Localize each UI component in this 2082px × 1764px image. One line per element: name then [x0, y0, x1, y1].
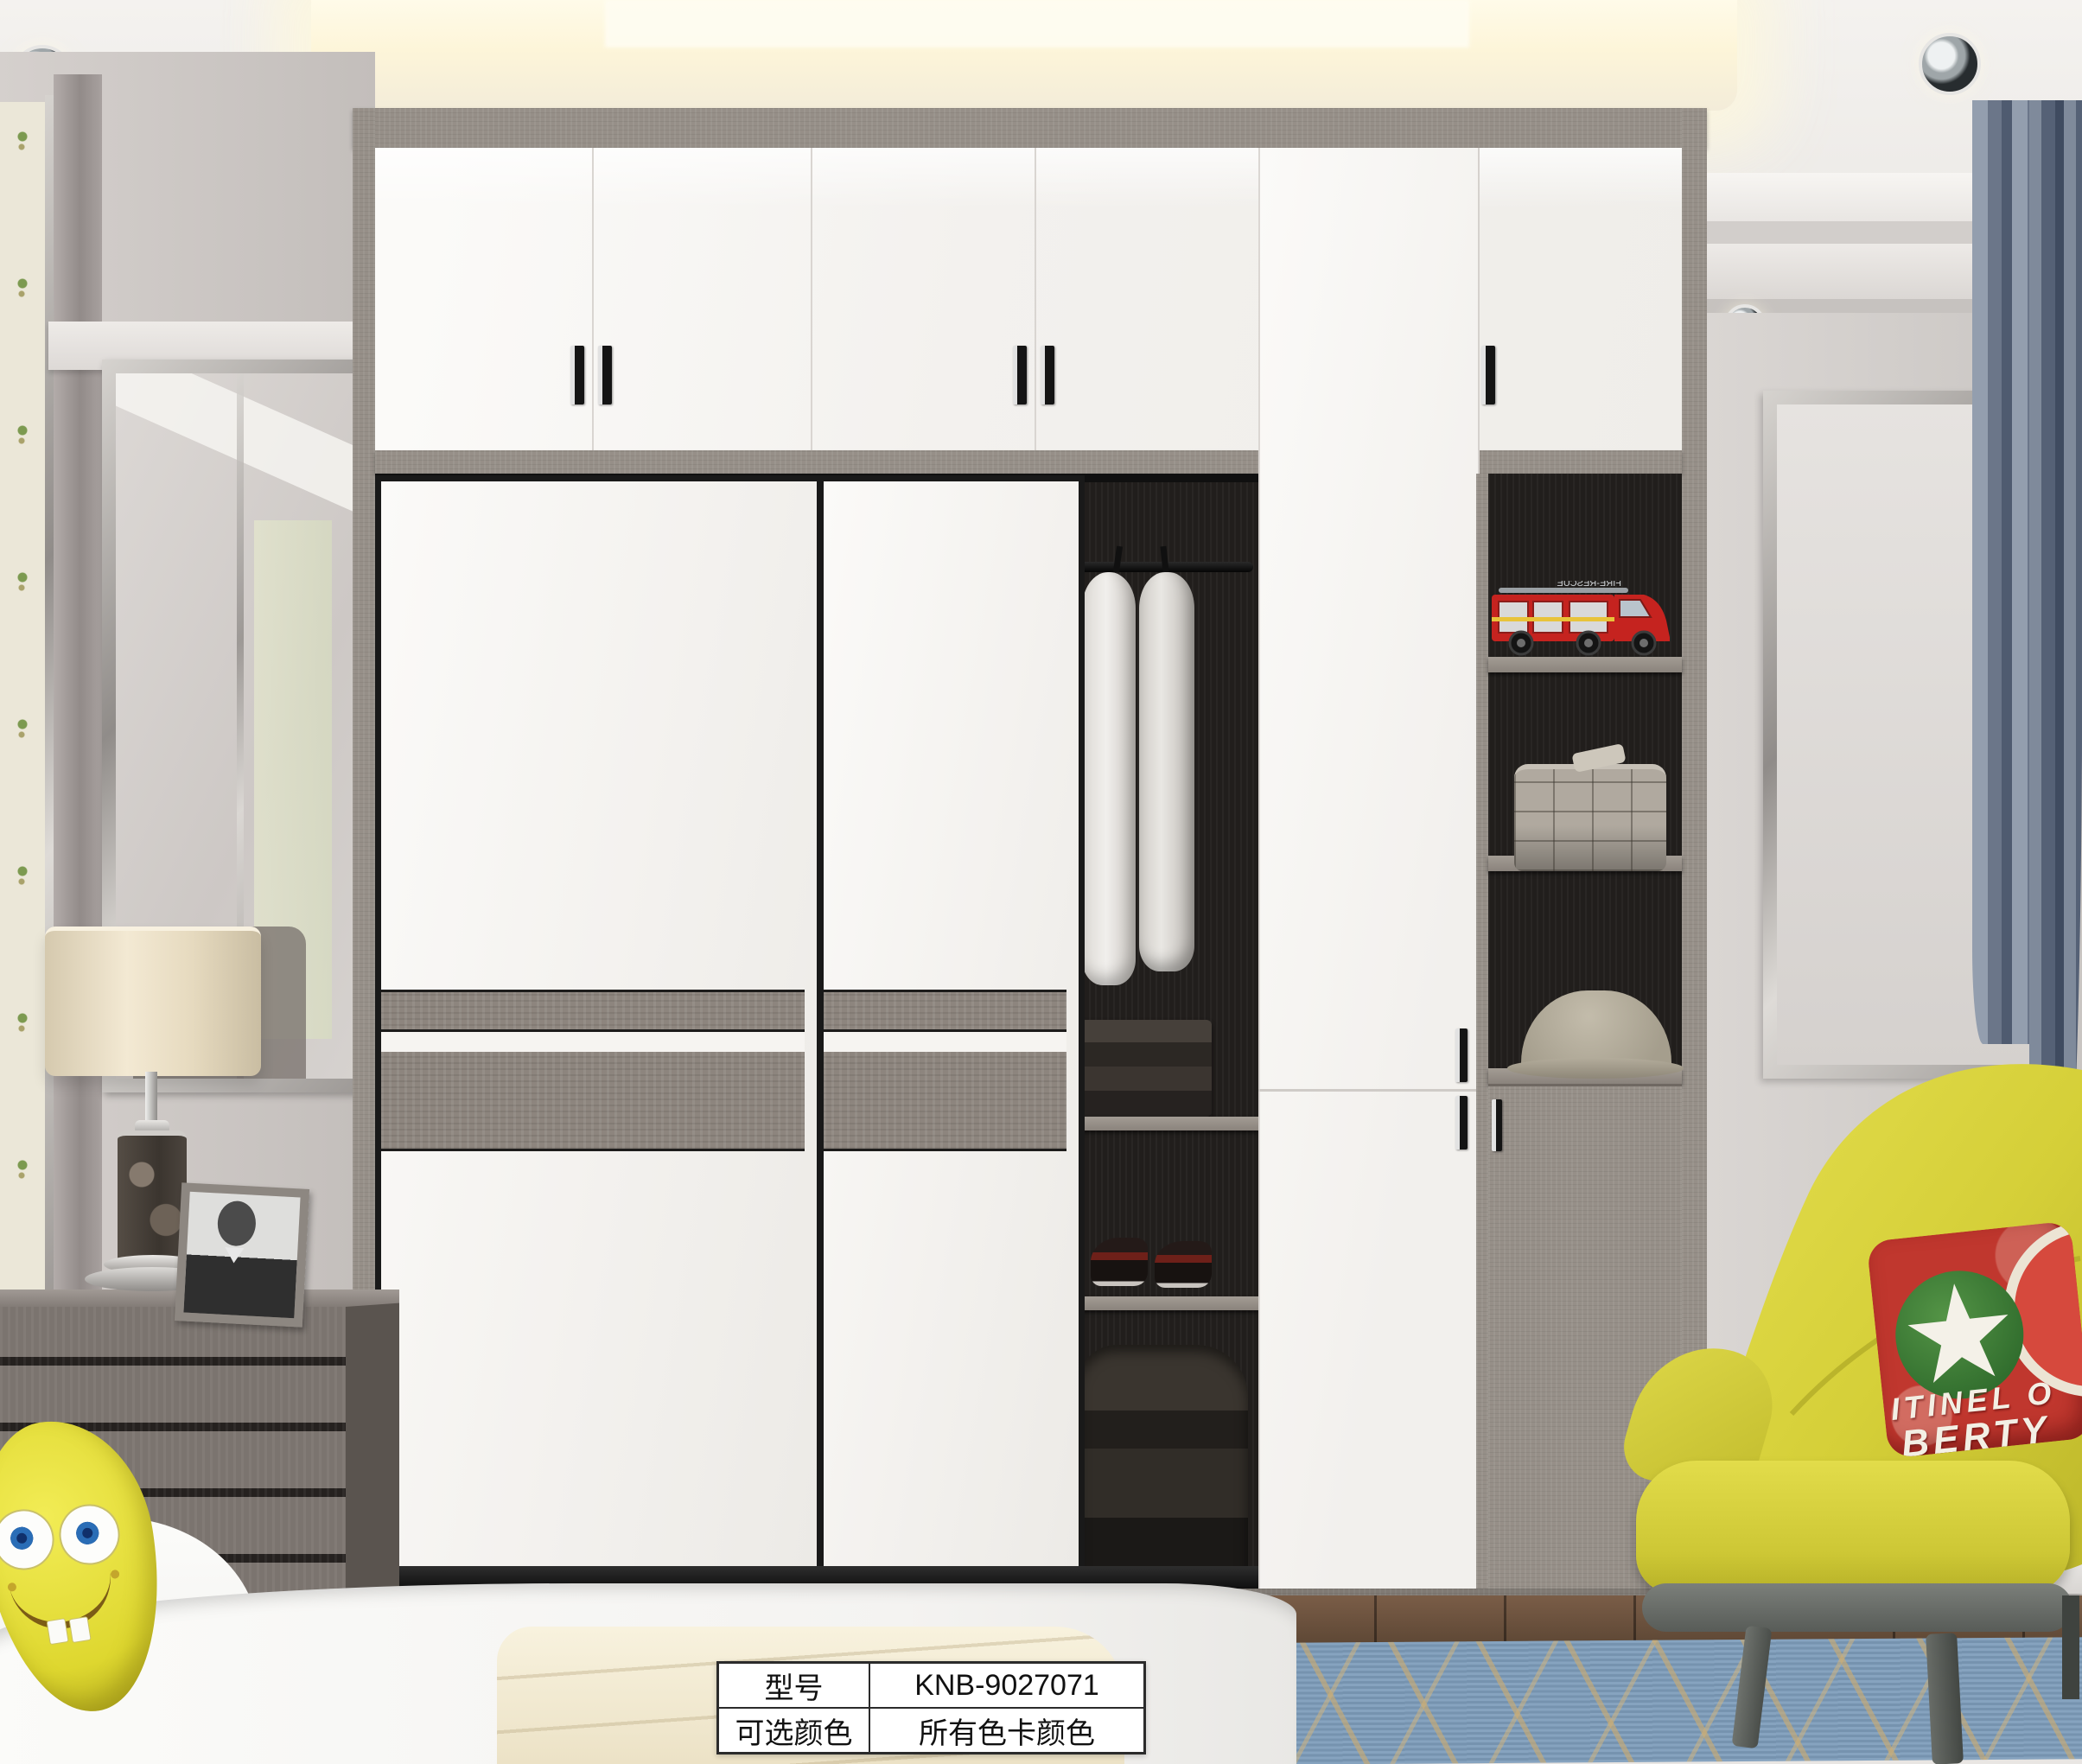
folded-blankets: [1079, 1345, 1248, 1587]
tall-white-cabinet: [1258, 148, 1480, 1589]
product-spec-table: 型号 KNB-9027071 可选颜色 所有色卡颜色: [716, 1661, 1146, 1754]
wardrobe-frame-top: [353, 108, 1707, 148]
folded-clothes-stack: [1080, 1020, 1212, 1117]
chair-frame-rim: [1642, 1583, 2072, 1632]
chair-leg: [2062, 1595, 2079, 1699]
hanging-jacket: [1139, 572, 1194, 971]
spec-value-colors: 所有色卡颜色: [869, 1708, 1144, 1753]
cabinet-handle: [1041, 346, 1054, 404]
chair-seat-cushion: [1636, 1461, 2070, 1594]
cabinet-handle: [1492, 1099, 1502, 1151]
sneaker: [1091, 1238, 1148, 1286]
cabinet-handle: [1013, 346, 1027, 404]
tall-cabinet-door-split: [1258, 1089, 1476, 1092]
door-concrete-band: [824, 990, 1066, 1032]
sneaker: [1155, 1241, 1212, 1288]
table-lamp-shade: [45, 927, 261, 1076]
spongebob-freckle: [110, 1570, 119, 1579]
spec-value-model: KNB-9027071: [869, 1663, 1144, 1708]
star-icon: [1901, 1276, 2018, 1393]
spec-label-colors: 可选颜色: [718, 1708, 869, 1753]
ceiling-spotlight-icon: [1919, 33, 1981, 95]
upper-cabinets-gloss: [375, 148, 1682, 208]
upper-door-seam: [1035, 148, 1036, 450]
bay-shelf: [1073, 1117, 1258, 1130]
spongebob-tooth: [47, 1618, 69, 1645]
bedroom-wardrobe-scene: FIRE-RESCUE: [0, 0, 2082, 1764]
bay-shelf: [1073, 1296, 1258, 1310]
portrait-shirt: [225, 1247, 245, 1264]
toy-fire-truck: FIRE-RESCUE: [1492, 581, 1670, 657]
portrait-head: [217, 1200, 258, 1247]
cabinet-handle: [1455, 1028, 1468, 1082]
star-pillow: ITINEL O BERTY: [1866, 1220, 2082, 1458]
nightstand-side: [346, 1303, 399, 1620]
upper-door-seam: [592, 148, 594, 450]
hanging-jacket: [1082, 572, 1136, 985]
upper-door-seam: [811, 148, 812, 450]
shelf-column-divider: [1476, 474, 1488, 1589]
cove-light-hotspot: [605, 0, 1469, 48]
cabinet-handle: [598, 346, 612, 404]
fire-truck-text: FIRE-RESCUE: [1557, 581, 1621, 589]
door-concrete-band: [381, 1052, 805, 1151]
sliding-door-right: [818, 475, 1085, 1601]
cubby-shelf: [1488, 657, 1682, 672]
spongebob-tooth: [69, 1616, 92, 1643]
storage-basket: [1514, 764, 1666, 871]
left-wallpaper-trim: [45, 95, 54, 1315]
cabinet-handle: [570, 346, 584, 404]
cabinet-handle: [1455, 1096, 1468, 1149]
photo-frame: [175, 1182, 309, 1328]
left-pilaster: [54, 74, 102, 1315]
cabinet-handle: [1481, 346, 1495, 404]
wardrobe-mid-band-right: [1476, 450, 1682, 474]
door-concrete-band: [824, 1052, 1066, 1151]
spec-label-model: 型号: [718, 1663, 869, 1708]
table-lamp-column: [118, 1130, 187, 1270]
left-wallpaper: [0, 102, 48, 1315]
sliding-door-left: [375, 475, 823, 1601]
wardrobe-mid-band-left: [375, 450, 1258, 474]
hat-brim: [1507, 1058, 1684, 1079]
door-concrete-band: [381, 990, 805, 1032]
